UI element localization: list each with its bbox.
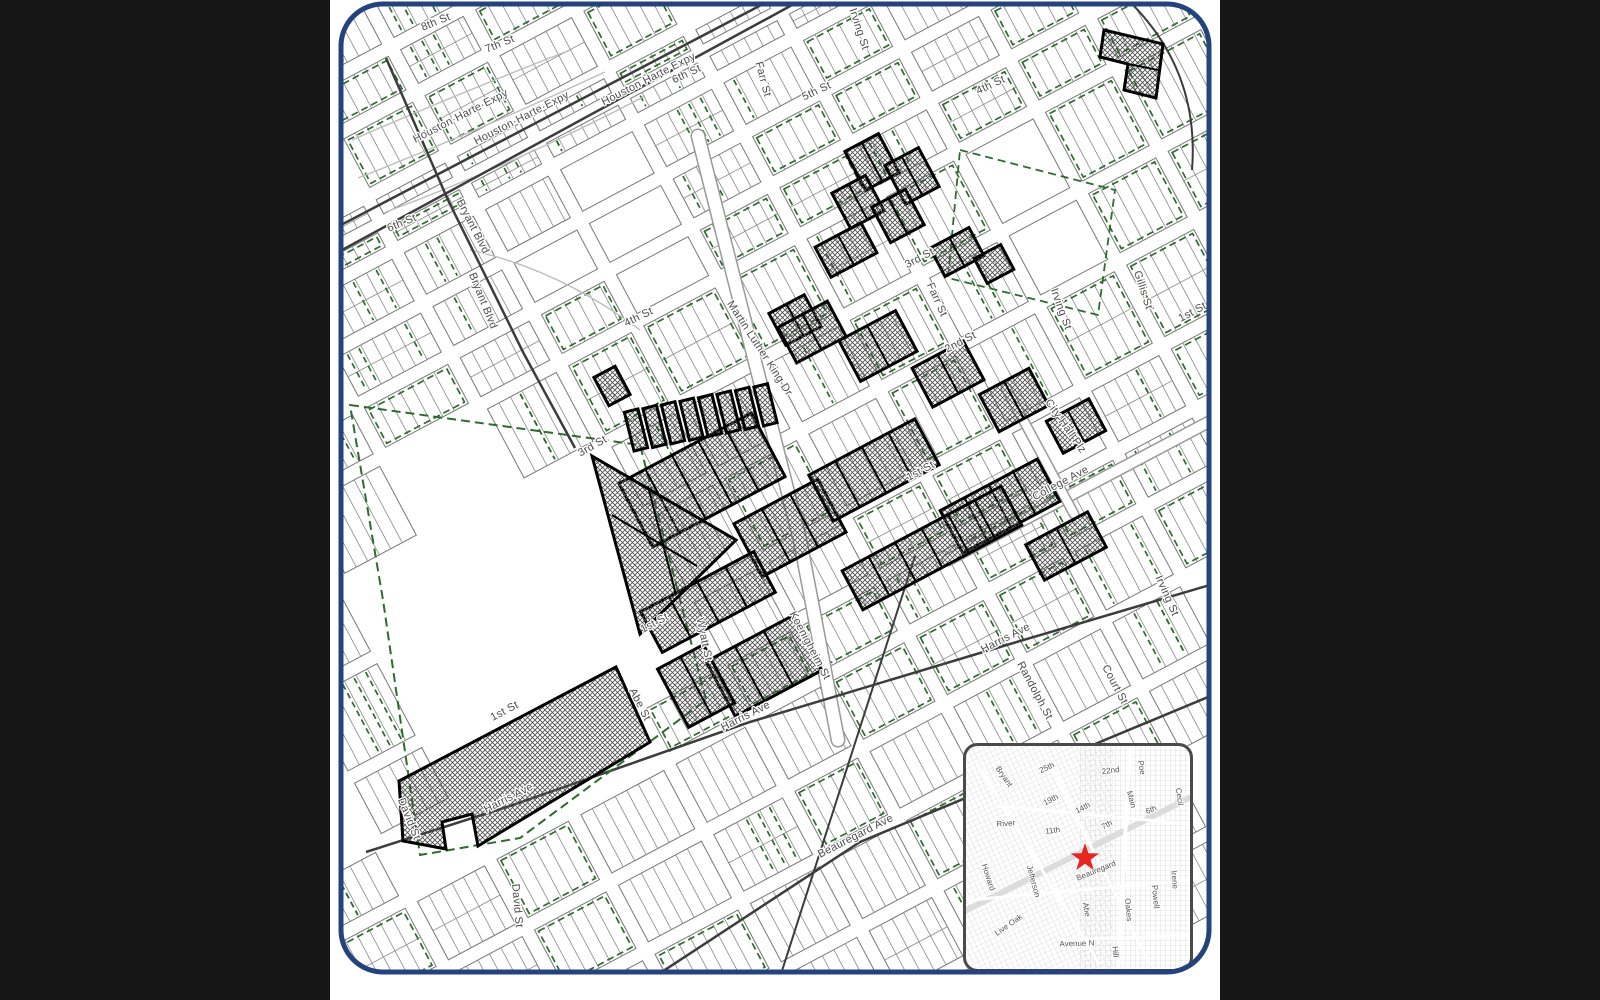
inset-street-label: Hill: [1111, 946, 1121, 958]
letterbox-right: [1220, 0, 1600, 1000]
map-page: 8th St7th StHouston·Harte·ExpyHouston·Ha…: [330, 0, 1220, 1000]
letterbox-left: [0, 0, 330, 1000]
inset-street-label: Irene: [1169, 870, 1180, 889]
screenshot-root: 8th St7th StHouston·Harte·ExpyHouston·Ha…: [0, 0, 1600, 1000]
parcel-map: 8th St7th StHouston·Harte·ExpyHouston·Ha…: [330, 0, 1220, 1000]
inset-street-label: River: [996, 818, 1016, 828]
inset-street-label: Avenue N: [1059, 938, 1095, 948]
